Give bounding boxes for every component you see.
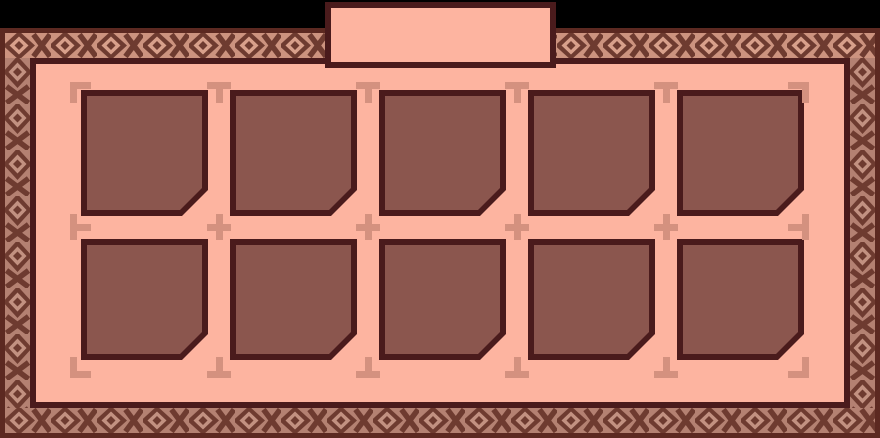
inventory-grid	[81, 90, 804, 360]
inventory-slot-10[interactable]	[677, 239, 804, 360]
border-pattern-right	[850, 58, 875, 408]
inventory-slot-4[interactable]	[528, 90, 655, 216]
inventory-slot-9[interactable]	[528, 239, 655, 360]
inventory-slot-6[interactable]	[81, 239, 208, 360]
border-pattern-bottom	[5, 408, 875, 433]
inventory-panel	[30, 58, 850, 408]
inventory-slot-3[interactable]	[379, 90, 506, 216]
inventory-slot-1[interactable]	[81, 90, 208, 216]
border-pattern-left	[5, 58, 30, 408]
inventory-slot-7[interactable]	[230, 239, 357, 360]
header-tab[interactable]	[325, 2, 556, 68]
inventory-slot-8[interactable]	[379, 239, 506, 360]
inventory-slot-2[interactable]	[230, 90, 357, 216]
inventory-slot-5[interactable]	[677, 90, 804, 216]
